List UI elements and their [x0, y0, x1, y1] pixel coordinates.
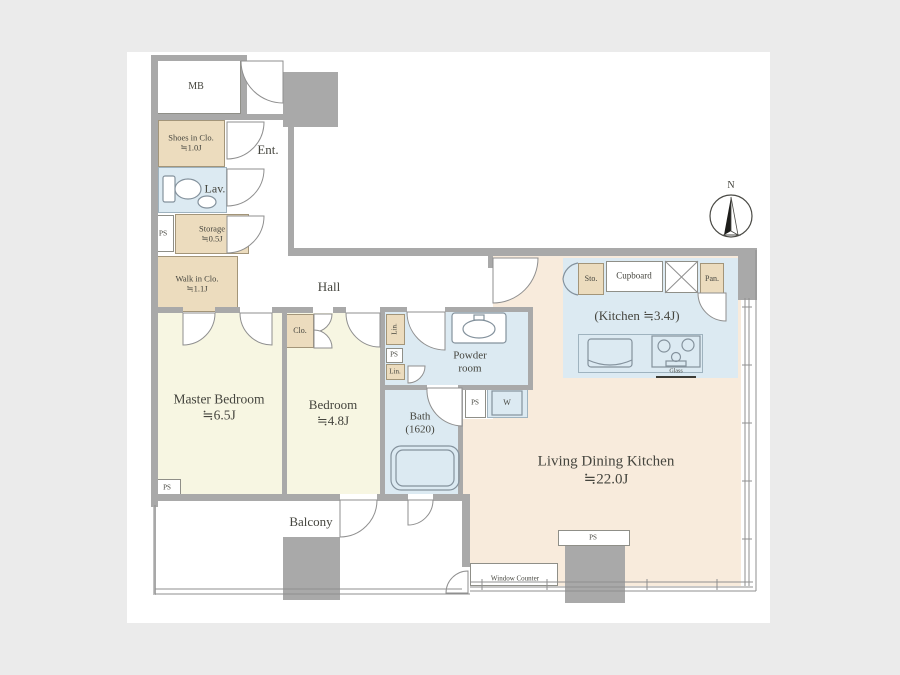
- walk-in-closet-label: Walk in Clo. ≒1.1J: [176, 274, 219, 295]
- door-arc: [227, 216, 264, 253]
- washer-label: W: [503, 398, 511, 408]
- door-arc: [183, 313, 215, 345]
- pipe-space-1-label: PS: [159, 228, 167, 237]
- entrance-label: Ent.: [257, 142, 278, 158]
- storage-name: Storage: [199, 224, 225, 234]
- balcony-door-arc: [340, 500, 377, 537]
- pipe-space-4-label: PS: [589, 534, 597, 543]
- lavatory-label: Lav.: [205, 182, 226, 197]
- hall-label: Hall: [318, 279, 340, 295]
- door-arc: [407, 312, 445, 350]
- master-bedroom-label: Master Bedroom ≒6.5J: [173, 392, 265, 425]
- ldk-name: Living Dining Kitchen: [538, 453, 675, 471]
- pipe-space-5-label: PS: [163, 484, 171, 493]
- kitchen-storage-folding-door: [563, 263, 578, 295]
- window-counter-label: Window Counter: [491, 575, 539, 584]
- bath-label: Bath (1620): [405, 411, 434, 438]
- linen-2-label: Lin.: [389, 368, 400, 377]
- window: [745, 250, 756, 591]
- entrance-door-arc: [241, 61, 283, 103]
- bath-name: Bath: [405, 411, 434, 424]
- closet-label: Clo.: [293, 326, 307, 336]
- toilet-tank-icon: [163, 176, 175, 202]
- pipe-space-2-label: PS: [390, 351, 398, 360]
- toilet-bowl-icon: [175, 179, 201, 199]
- ldk-size: ≒22.0J: [538, 471, 675, 489]
- pipe-space-3-label: PS: [471, 399, 479, 408]
- burner-icon: [658, 340, 670, 352]
- bath-size: (1620): [405, 424, 434, 437]
- stove-base-line: [656, 376, 696, 378]
- floorplan-page: { "page": { "background": "#ebebeb", "ca…: [0, 0, 900, 675]
- door-arc: [227, 169, 264, 206]
- hall-ldk-door-arc: [493, 258, 538, 303]
- door-arc: [408, 366, 425, 383]
- shoes-closet-name: Shoes in Clo.: [168, 133, 214, 143]
- shoes-closet-label: Shoes in Clo. ≒1.0J: [168, 133, 214, 154]
- lavatory-sink-icon: [198, 196, 216, 208]
- walk-in-closet-name: Walk in Clo.: [176, 274, 219, 284]
- shoes-closet-size: ≒1.0J: [168, 143, 214, 153]
- powder-room-label: Powder room: [444, 350, 496, 377]
- kitchen-sink-edge-icon: [588, 360, 632, 365]
- door-arc: [346, 313, 380, 347]
- window: [470, 582, 756, 591]
- balcony-door-arc: [408, 500, 433, 525]
- ldk-label: Living Dining Kitchen ≒22.0J: [538, 453, 675, 490]
- burner-icon: [682, 339, 694, 351]
- pantry-door-arc: [698, 293, 726, 321]
- bathtub-icon: [391, 446, 459, 490]
- bedroom-label: Bedroom ≒4.8J: [309, 397, 357, 429]
- door-arc: [240, 313, 272, 345]
- storage-size: ≒0.5J: [199, 234, 225, 244]
- kitchen-storage-label: Sto.: [585, 274, 598, 284]
- window-ticks: [742, 307, 752, 539]
- compass-icon: [710, 195, 752, 237]
- closet-folding-door: [314, 330, 332, 348]
- walk-in-closet-size: ≒1.1J: [176, 284, 219, 294]
- bedroom-name: Bedroom: [309, 397, 357, 413]
- floorplan-canvas: MB Shoes in Clo. ≒1.0J Ent. Lav. PS Stor…: [127, 52, 770, 623]
- cupboard-label: Cupboard: [616, 271, 652, 282]
- corner-door-arc: [446, 571, 468, 593]
- compass-north-label: N: [727, 180, 734, 192]
- plan-linework: [127, 52, 770, 623]
- refrigerator-cross-icon: [665, 261, 698, 293]
- stove-note-label: Glass: [669, 368, 682, 375]
- meter-box-label: MB: [188, 81, 204, 93]
- kitchen-label: (Kitchen ≒3.4J): [594, 308, 679, 324]
- bathtub-inner-icon: [396, 450, 454, 486]
- master-bedroom-size: ≒6.5J: [173, 408, 265, 424]
- pantry-label: Pan.: [705, 274, 719, 284]
- balcony-label: Balcony: [289, 514, 332, 530]
- bedroom-size: ≒4.8J: [309, 413, 357, 429]
- closet-folding-door: [314, 314, 332, 332]
- burner-icon: [672, 353, 681, 362]
- storage-label: Storage ≒0.5J: [199, 224, 225, 245]
- master-bedroom-name: Master Bedroom: [173, 392, 264, 407]
- linen-1-label: Lin.: [391, 323, 400, 334]
